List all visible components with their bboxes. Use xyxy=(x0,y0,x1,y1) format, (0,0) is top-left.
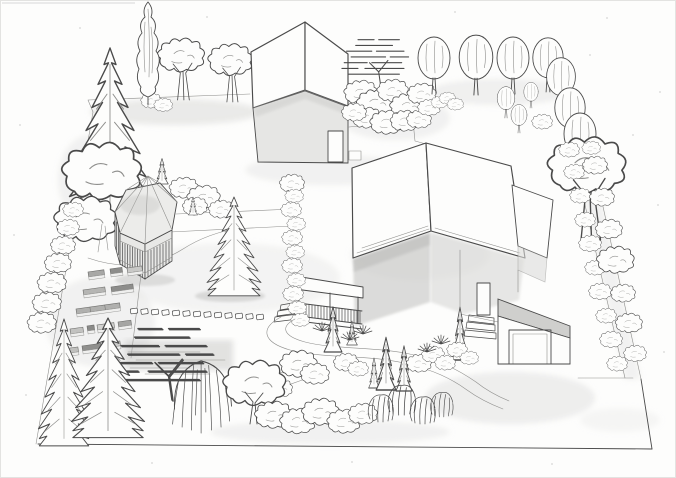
raised-bed xyxy=(118,320,132,330)
shrub-icon xyxy=(435,355,456,370)
guest-house-step xyxy=(349,151,361,160)
shrub-icon xyxy=(582,156,607,174)
shrub-icon xyxy=(564,164,585,179)
boundary-shrub-icon xyxy=(37,272,66,293)
shrub-icon xyxy=(341,103,366,121)
shrub-icon xyxy=(597,246,635,273)
boundary-shrub-icon xyxy=(27,312,56,333)
shrub-icon xyxy=(348,361,369,376)
shrub-icon xyxy=(596,308,617,323)
stone-icon xyxy=(172,310,180,316)
shrub-icon xyxy=(154,98,173,112)
shrub-icon xyxy=(623,345,646,362)
stair-tower xyxy=(477,283,490,315)
boundary-shrub-icon xyxy=(44,253,71,273)
stone-icon xyxy=(214,312,222,318)
vine-clump-icon xyxy=(283,286,304,301)
stone-icon xyxy=(141,309,149,315)
shrub-icon xyxy=(570,188,591,203)
stone-icon xyxy=(204,312,212,318)
shrub-icon xyxy=(595,219,622,239)
shrub-icon xyxy=(460,351,479,365)
shrub-icon xyxy=(607,356,628,371)
stone-icon xyxy=(193,311,201,317)
raised-bed xyxy=(87,325,95,334)
shrub-icon xyxy=(582,141,601,155)
shrub-icon xyxy=(559,142,580,157)
shrub-icon xyxy=(599,331,622,348)
stone-icon xyxy=(225,313,233,319)
gazebo-roof-shade xyxy=(120,195,160,215)
vine-clump-icon xyxy=(288,301,307,315)
shrub-icon xyxy=(615,313,642,333)
leafy-crown-icon xyxy=(223,360,286,405)
vine-clump-icon xyxy=(286,245,305,259)
raised-bed xyxy=(70,327,84,337)
stone-icon xyxy=(162,310,170,316)
raised-bed xyxy=(127,266,143,276)
shrub-icon xyxy=(610,284,635,302)
boundary-shrub-icon xyxy=(63,202,84,217)
shrub-icon xyxy=(588,283,611,300)
shrub-icon xyxy=(589,188,614,206)
stone-icon xyxy=(235,313,243,319)
stone-icon xyxy=(130,308,138,314)
vine-clump-icon xyxy=(281,202,302,217)
garden-plan-drawing: Hand-drawn pencil perspective sketch of … xyxy=(0,0,676,478)
shrub-icon xyxy=(578,235,601,252)
stone-icon xyxy=(151,309,159,315)
stone-icon xyxy=(183,311,191,317)
vine-clump-icon xyxy=(285,189,304,203)
stone-icon xyxy=(246,314,254,320)
boundary-shrub-icon xyxy=(56,219,79,236)
boundary-shrub-icon xyxy=(50,236,75,254)
raised-bed xyxy=(110,267,123,277)
vine-clump-icon xyxy=(287,217,306,231)
sketch-sheet: Hand-drawn pencil perspective sketch of … xyxy=(0,0,676,478)
vine-clump-icon xyxy=(287,273,306,287)
vine-clump-icon xyxy=(282,230,303,245)
shrub-icon xyxy=(300,363,329,384)
boundary-shrub-icon xyxy=(32,292,61,313)
stone-icon xyxy=(256,314,264,320)
vine-clump-icon xyxy=(282,258,303,273)
guest-house-door xyxy=(328,131,343,162)
shrub-icon xyxy=(447,98,464,110)
shrub-icon xyxy=(532,114,553,129)
shrub-icon xyxy=(575,212,596,227)
